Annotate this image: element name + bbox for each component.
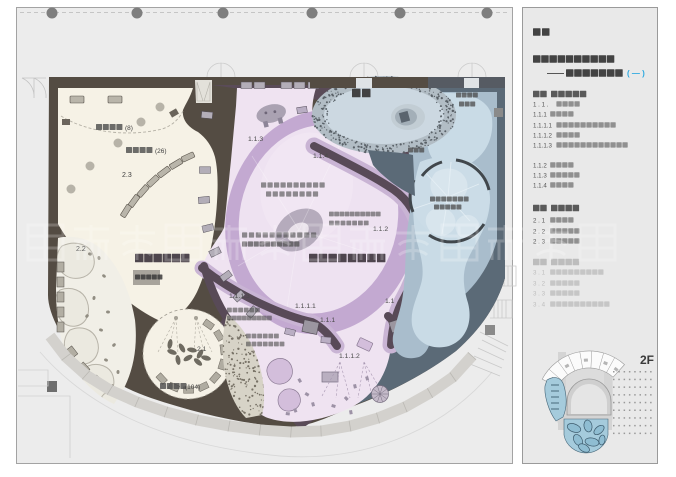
svg-text:2F: 2F <box>640 353 654 367</box>
svg-text:1.1.4: 1.1.4 <box>313 153 328 160</box>
svg-text:2 . 1: 2 . 1 <box>533 218 546 225</box>
svg-text:3 . 4: 3 . 4 <box>533 302 546 309</box>
svg-text:(26): (26) <box>155 148 167 155</box>
svg-text:——: —— <box>547 68 565 78</box>
svg-text:1.1.1.3: 1.1.1.3 <box>229 293 250 300</box>
svg-text:1.1.1: 1.1.1 <box>320 317 335 324</box>
svg-text:1.1.3: 1.1.3 <box>533 173 547 180</box>
svg-text:1.1.1.3: 1.1.1.3 <box>533 143 552 150</box>
svg-text:3 . 1: 3 . 1 <box>533 270 546 277</box>
svg-text:1 . 1 .: 1 . 1 . <box>533 102 549 109</box>
svg-text:2.1: 2.1 <box>197 346 207 353</box>
svg-text:1.1.1.1: 1.1.1.1 <box>295 303 316 310</box>
svg-text:1.1: 1.1 <box>385 298 395 305</box>
svg-text:(8): (8) <box>125 125 133 132</box>
svg-text:1.1.1.2: 1.1.1.2 <box>339 353 360 360</box>
svg-text:1.1.1.1: 1.1.1.1 <box>533 123 552 130</box>
svg-text:3 . 2: 3 . 2 <box>533 281 546 288</box>
svg-text:1.1.1: 1.1.1 <box>533 112 547 119</box>
svg-text:1.1.4: 1.1.4 <box>533 183 547 190</box>
svg-text:1.1.1.2: 1.1.1.2 <box>533 133 552 140</box>
svg-text:1.1.3: 1.1.3 <box>248 136 263 143</box>
svg-text:3 . 3: 3 . 3 <box>533 291 546 298</box>
svg-text:(104): (104) <box>185 384 200 391</box>
svg-text:1.1.2: 1.1.2 <box>533 163 547 170</box>
svg-text:( — ): ( — ) <box>627 69 645 78</box>
svg-text:2.3: 2.3 <box>122 172 132 179</box>
